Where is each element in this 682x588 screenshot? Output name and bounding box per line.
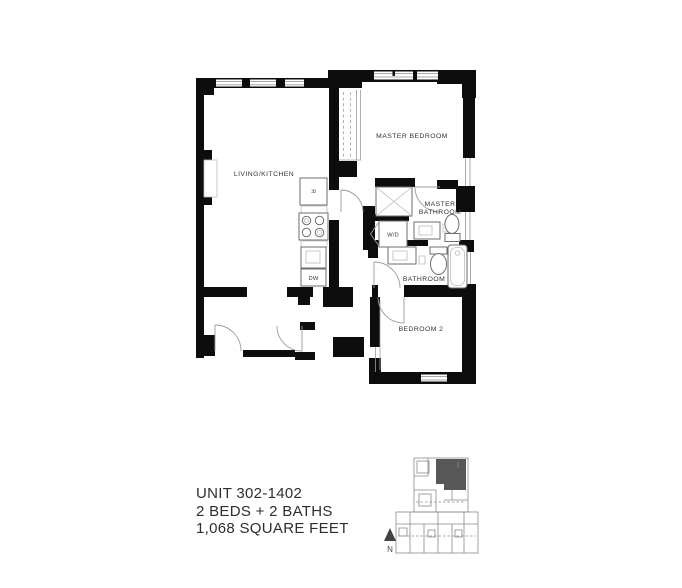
range-stove: [299, 213, 328, 240]
north-arrow: N: [384, 528, 396, 554]
label-master-bathroom-1: MASTER: [424, 201, 455, 208]
bathtub: [448, 245, 467, 288]
key-plan: [396, 458, 478, 553]
bathroom-toilet: [430, 247, 447, 275]
unit-beds-baths: 2 BEDS + 2 BATHS: [196, 503, 349, 521]
north-arrow-icon: [384, 528, 396, 541]
label-dishwasher: DW: [308, 276, 318, 282]
north-label: N: [387, 545, 393, 554]
kitchen-sink: [301, 247, 326, 268]
floor-plan-page: LIVING/KITCHEN MASTER BEDROOM MASTER BAT…: [0, 0, 682, 588]
label-living-kitchen: LIVING/KITCHEN: [234, 171, 294, 178]
counter: [301, 241, 327, 247]
unit-area: 1,068 SQUARE FEET: [196, 520, 349, 538]
label-washer-dryer: W/D: [387, 233, 399, 239]
master-bath-toilet: [445, 215, 460, 242]
counter: [301, 206, 327, 213]
label-refrigerator: R: [310, 189, 316, 193]
master-bath-sink: [414, 222, 449, 239]
unit-number: UNIT 302-1402: [196, 485, 349, 503]
living-niche: [204, 160, 217, 197]
kitchen-appliances: [299, 178, 328, 286]
master-closet: [339, 90, 361, 160]
label-master-bathroom-2: BATHROOM: [419, 209, 461, 216]
bathroom-sink: [388, 247, 425, 264]
label-master-bedroom: MASTER BEDROOM: [376, 133, 448, 140]
label-bedroom-2: BEDROOM 2: [399, 326, 444, 333]
label-bathroom: BATHROOM: [403, 276, 445, 283]
unit-info: UNIT 302-1402 2 BEDS + 2 BATHS 1,068 SQU…: [196, 485, 349, 538]
shower: [376, 187, 412, 216]
